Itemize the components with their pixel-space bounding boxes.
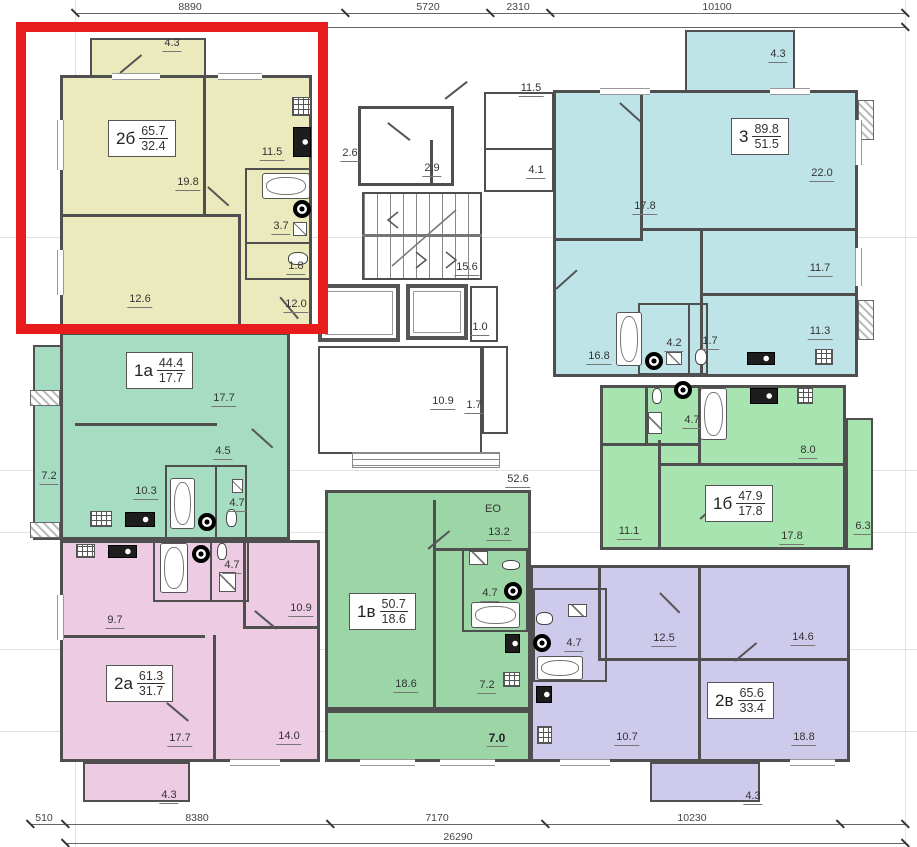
room-area: 12.5 (651, 632, 676, 647)
washer-icon (666, 352, 682, 365)
wall (600, 443, 700, 446)
stair-landing-rail (362, 234, 482, 237)
wall (75, 423, 217, 426)
room-area: 7.2 (477, 679, 496, 694)
room-area: 4.7 (222, 559, 241, 574)
bathtub-icon (170, 478, 195, 529)
toilet-icon (695, 349, 707, 365)
unit-area-living: 18.6 (382, 612, 406, 626)
room-area: 1.7 (700, 335, 719, 350)
room-area: 10.9 (288, 602, 313, 617)
stove-icon (76, 544, 95, 558)
dim-label: 2310 (506, 1, 529, 13)
room-area: 17.8 (779, 530, 804, 545)
room-area: 16.8 (586, 350, 611, 365)
room-area: 4.7 (227, 497, 246, 512)
room-area: 14.6 (790, 631, 815, 646)
dimension-line (30, 824, 905, 825)
room-area: 17.8 (632, 200, 657, 215)
room-area: 4.7 (682, 414, 701, 429)
unit-type: 2в (715, 691, 734, 711)
unit-areas: 61.3 31.7 (137, 669, 165, 698)
window (440, 759, 495, 766)
room-area: 17.7 (211, 392, 236, 407)
window (855, 120, 862, 165)
room-area: 22.0 (809, 167, 834, 182)
entrance-steps (352, 452, 500, 468)
wall (243, 626, 320, 629)
kitchen-sink-icon (505, 634, 520, 653)
balcony-1a (33, 345, 62, 540)
unit-type: 1б (713, 494, 732, 514)
wall-pier (30, 390, 60, 406)
room-area: 6.3 (853, 520, 872, 535)
unit-area-total: 89.8 (752, 122, 780, 137)
kitchen-sink-icon (125, 512, 155, 527)
room-area: 13.2 (486, 526, 511, 541)
unit-area-living: 31.7 (139, 684, 163, 698)
room-label-eo: ЕО (483, 503, 503, 517)
lobby (318, 346, 482, 454)
washer-icon (648, 412, 662, 434)
wall (60, 635, 205, 638)
wall-pier (30, 522, 60, 538)
stove-icon (815, 349, 833, 365)
toilet-icon (536, 612, 553, 625)
lobby-small (482, 346, 508, 434)
room-area: 2.6 (340, 147, 359, 162)
unit-area-total: 61.3 (137, 669, 165, 684)
bathtub-icon (471, 602, 520, 628)
dim-label: 10230 (677, 812, 706, 824)
elevator-shaft (406, 284, 468, 340)
wall (553, 238, 643, 241)
toilet-icon (217, 543, 227, 560)
room-area: 18.8 (791, 731, 816, 746)
bathtub-icon (160, 543, 188, 593)
room-area: 11.5 (519, 82, 544, 97)
dim-label-total: 26290 (443, 831, 472, 843)
washer-icon (469, 551, 488, 565)
room-area: 11.1 (617, 525, 642, 540)
room-area: 10.9 (430, 395, 455, 410)
unit-label-3: 3 89.8 51.5 (731, 118, 789, 155)
unit-label-1a: 1а 44.4 17.7 (126, 352, 193, 389)
window (57, 595, 64, 640)
unit-area-total: 47.9 (736, 489, 764, 504)
unit-areas: 89.8 51.5 (752, 122, 780, 151)
wall (658, 463, 846, 466)
bathtub-icon (616, 312, 642, 366)
room-area: 18.6 (393, 678, 418, 693)
toilet-icon (652, 388, 662, 404)
room-area: 11.7 (808, 262, 833, 277)
kitchen-sink-icon (747, 352, 775, 365)
stove-icon (90, 511, 112, 527)
room-area: 4.3 (743, 790, 762, 805)
unit-areas: 47.9 17.8 (736, 489, 764, 518)
unit-areas: 44.4 17.7 (157, 356, 185, 385)
washer-icon (568, 604, 587, 617)
room-area: 4.1 (526, 164, 545, 179)
dim-label: 8890 (178, 1, 201, 13)
bathtub-icon (700, 388, 727, 440)
wall (688, 303, 690, 375)
washer-icon (219, 572, 236, 592)
window (855, 248, 862, 286)
wall (433, 500, 436, 710)
door-leaf (445, 81, 468, 99)
wall (213, 635, 216, 762)
vent-icon (645, 352, 663, 370)
room-area: 15.6 (454, 261, 479, 276)
room-area: 52.6 (505, 473, 530, 488)
stove-icon (503, 672, 520, 687)
dimension-line (65, 843, 905, 844)
unit-label-1v: 1в 50.7 18.6 (349, 593, 416, 630)
unit-area-living: 51.5 (754, 137, 778, 151)
unit-label-2a: 2а 61.3 31.7 (106, 665, 173, 702)
room-area: 8.0 (798, 444, 817, 459)
room-area: 7.2 (39, 470, 58, 485)
window (560, 759, 610, 766)
room-area: 9.7 (105, 614, 124, 629)
kitchen-sink-icon (750, 388, 778, 404)
wall (658, 440, 661, 550)
unit-type: 2а (114, 674, 133, 694)
window (770, 88, 810, 95)
dim-label: 8380 (185, 812, 208, 824)
room-area: 14.0 (276, 730, 301, 745)
window (600, 88, 650, 95)
stove-icon (797, 388, 813, 404)
unit-area-living: 17.7 (159, 371, 183, 385)
wall (598, 658, 850, 661)
room-area: 10.7 (614, 731, 639, 746)
kitchen-sink-icon (108, 545, 137, 558)
room-area: 10.3 (133, 485, 158, 500)
window (230, 759, 280, 766)
room-area: 4.2 (664, 337, 683, 352)
wall (698, 565, 701, 762)
room-area: 17.7 (167, 732, 192, 747)
unit-area-total: 65.6 (738, 686, 766, 701)
elevator-shaft (318, 284, 400, 342)
dim-label: 510 (35, 812, 53, 824)
vent-icon (192, 545, 210, 563)
vent-icon (504, 582, 522, 600)
unit-area-total: 50.7 (380, 597, 408, 612)
room-area: 4.7 (564, 637, 583, 652)
wall (700, 293, 858, 296)
window (790, 759, 835, 766)
room-area: 1.0 (470, 321, 489, 336)
axis-line (905, 0, 906, 847)
unit-area-total: 44.4 (157, 356, 185, 371)
wall (215, 465, 217, 540)
floor-plan: 8890 5720 2310 10100 510 8380 7170 10230… (0, 0, 917, 847)
wall (640, 90, 643, 240)
unit-label-1b: 1б 47.9 17.8 (705, 485, 773, 522)
unit-areas: 50.7 18.6 (380, 597, 408, 626)
wall (210, 540, 212, 602)
bathtub-icon (537, 656, 583, 680)
room-area: 4.3 (768, 48, 787, 63)
toilet-icon (502, 560, 520, 570)
room-area: 4.3 (159, 789, 178, 804)
room-area: 7.0 (487, 731, 508, 747)
dim-label: 7170 (425, 812, 448, 824)
unit-areas: 65.6 33.4 (738, 686, 766, 715)
washer-icon (232, 479, 243, 493)
room-area: 4.5 (213, 445, 232, 460)
vent-icon (674, 381, 692, 399)
wall (243, 540, 246, 628)
dim-label: 10100 (702, 1, 731, 13)
unit-type: 1а (134, 361, 153, 381)
room-area: 4.7 (480, 587, 499, 602)
unit-area-living: 33.4 (740, 701, 764, 715)
room-area: 1.7 (464, 399, 483, 414)
wall-pier (858, 300, 874, 340)
unit-area-living: 17.8 (738, 504, 762, 518)
dim-label: 5720 (416, 1, 439, 13)
unit-type: 3 (739, 127, 748, 147)
unit-label-2v: 2в 65.6 33.4 (707, 682, 774, 719)
window (360, 759, 415, 766)
vent-icon (533, 634, 551, 652)
unit-type: 1в (357, 602, 376, 622)
wall (484, 148, 554, 150)
vent-icon (198, 513, 216, 531)
highlight-box (16, 22, 328, 334)
room-area: 2.9 (422, 162, 441, 177)
stove-icon (537, 726, 552, 744)
room-area: 11.3 (808, 325, 833, 340)
kitchen-sink-icon (536, 686, 552, 703)
wall (640, 228, 858, 231)
